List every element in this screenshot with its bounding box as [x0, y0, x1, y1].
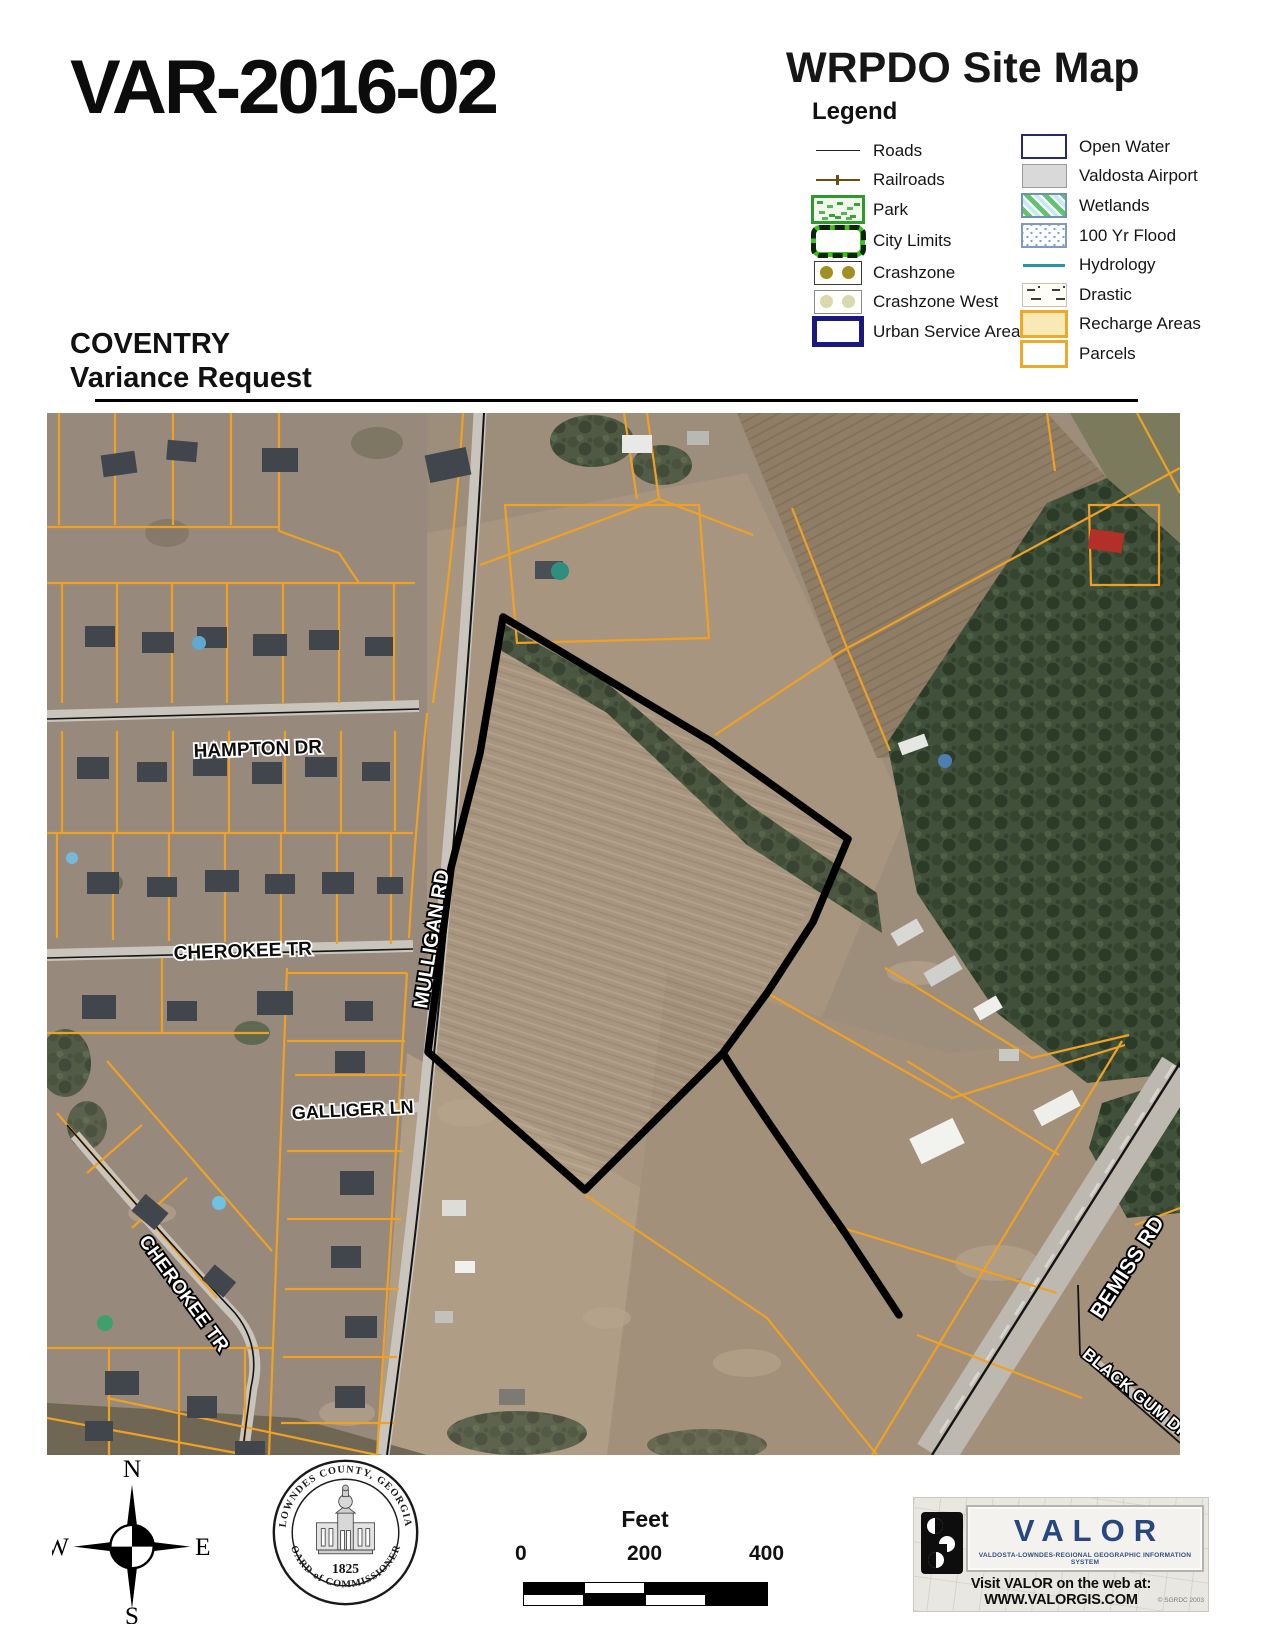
sgrdc-logo-icon: [921, 1512, 963, 1574]
scale-bar-segments: [523, 1582, 768, 1608]
scale-tick-400: 400: [749, 1542, 784, 1566]
compass-star: [74, 1485, 191, 1609]
scale-tick-200: 200: [627, 1542, 662, 1566]
urban-service-area-swatch-icon: [812, 316, 864, 347]
crashzone-west-swatch-icon: [814, 290, 862, 314]
road-label-hampton: HAMPTON DR: [193, 737, 322, 762]
scale-bar: Feet 0 200 400: [505, 1498, 785, 1616]
legend-item-hydrology: Hydrology: [1016, 250, 1201, 280]
legend-item-parcels: Parcels: [1016, 339, 1201, 369]
legend-column-right: Open Water Valdosta Airport Wetlands 100…: [1016, 132, 1201, 369]
valor-name: VALOR: [968, 1513, 1202, 1549]
legend-item-roads: Roads: [810, 136, 1020, 166]
legend-title: Legend: [812, 98, 897, 126]
legend-item-100yr-flood: 100 Yr Flood: [1016, 221, 1201, 251]
flood-swatch-icon: [1021, 223, 1067, 248]
project-name: COVENTRY: [70, 328, 230, 361]
legend-item-park: Park: [810, 195, 1020, 225]
legend-item-open-water: Open Water: [1016, 132, 1201, 162]
railroad-line-icon: [816, 179, 860, 181]
residential-ground: [47, 413, 427, 1455]
legend-item-urban-service-area: Urban Service Area: [810, 317, 1020, 347]
aerial-photo-canvas: HAMPTON DR CHEROKEE TR MULLIGAN RD GALLI…: [47, 413, 1180, 1455]
wetlands-swatch-icon: [1021, 193, 1067, 218]
legend-column-left: Roads Railroads Park City Limits Crashzo…: [810, 136, 1020, 347]
hydrology-line-icon: [1023, 264, 1065, 267]
valor-logo: VALOR VALDOSTA-LOWNDES-REGIONAL GEOGRAPH…: [913, 1497, 1209, 1612]
legend-item-railroads: Railroads: [810, 166, 1020, 196]
compass-west-label: W: [52, 1533, 69, 1561]
parcels-swatch-icon: [1020, 340, 1068, 368]
legend-item-city-limits: City Limits: [810, 225, 1020, 258]
request-type: Variance Request: [70, 362, 312, 395]
recharge-swatch-icon: [1020, 310, 1068, 338]
legend-item-valdosta-airport: Valdosta Airport: [1016, 162, 1201, 192]
compass-east-label: E: [195, 1533, 211, 1561]
compass-north-label: N: [123, 1458, 141, 1483]
compass-south-label: S: [125, 1602, 139, 1624]
seal-year: 1825: [332, 1561, 359, 1576]
roads-line-icon: [816, 150, 860, 151]
scale-tick-0: 0: [515, 1542, 527, 1566]
compass-rose: N S W E: [52, 1458, 212, 1624]
scale-ticks: 0 200 400: [505, 1542, 785, 1566]
drastic-swatch-icon: [1022, 283, 1067, 307]
aerial-map: HAMPTON DR CHEROKEE TR MULLIGAN RD GALLI…: [47, 413, 1180, 1455]
site-map-document: VAR-2016-02 WRPDO Site Map Legend COVENT…: [0, 0, 1275, 1650]
valor-subtitle: VALDOSTA-LOWNDES-REGIONAL GEOGRAPHIC INF…: [968, 1552, 1202, 1566]
airport-swatch-icon: [1022, 164, 1067, 188]
city-limits-swatch-icon: [811, 225, 865, 257]
legend-item-recharge-areas: Recharge Areas: [1016, 310, 1201, 340]
map-title: WRPDO Site Map: [786, 44, 1140, 93]
legend-item-crashzone: Crashzone: [810, 258, 1020, 288]
scale-units-label: Feet: [505, 1506, 785, 1533]
park-swatch-icon: [811, 195, 865, 224]
county-seal: LOWNDES COUNTY, GEORGIA BOARD of COMMISS…: [268, 1455, 423, 1610]
valor-badge: VALOR VALDOSTA-LOWNDES-REGIONAL GEOGRAPH…: [966, 1505, 1204, 1572]
valor-copyright: © SGRDC 2003: [1158, 1597, 1204, 1604]
legend-item-drastic: Drastic: [1016, 280, 1201, 310]
page-title: VAR-2016-02: [70, 44, 496, 131]
legend-item-wetlands: Wetlands: [1016, 191, 1201, 221]
legend-item-crashzone-west: Crashzone West: [810, 287, 1020, 317]
divider-rule: [95, 399, 1138, 402]
open-water-swatch-icon: [1021, 134, 1067, 159]
crashzone-swatch-icon: [814, 261, 862, 285]
